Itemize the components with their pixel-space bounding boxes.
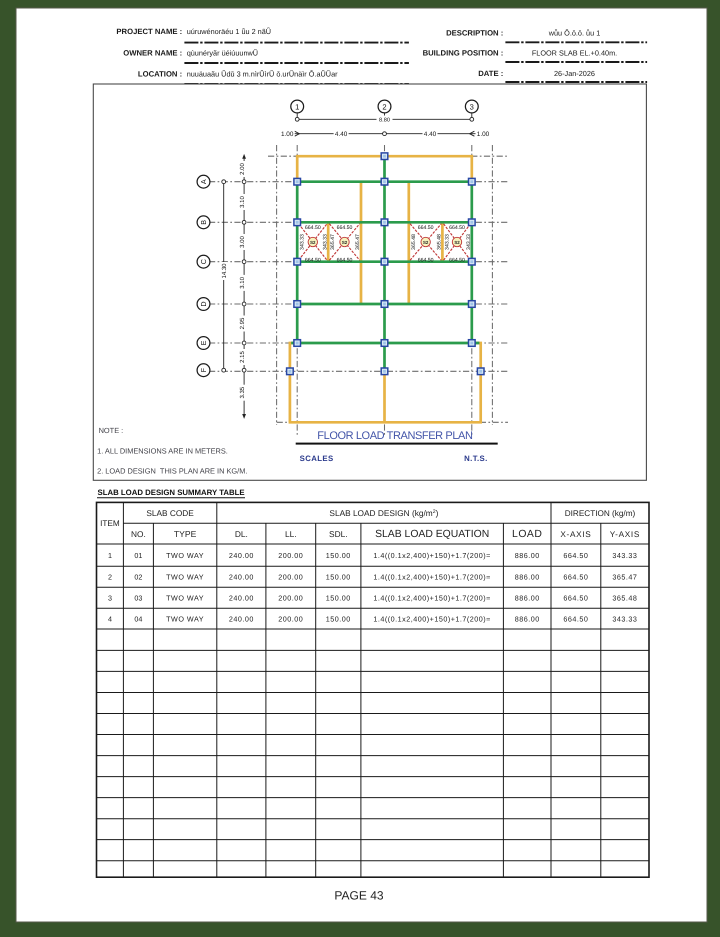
svg-text:qùunéryãr üéiúuunwǕ: qùunéryãr üéiúuunwǕ bbox=[187, 49, 258, 58]
svg-text:TWO WAY: TWO WAY bbox=[166, 593, 204, 602]
svg-text:PROJECT NAME :: PROJECT NAME : bbox=[116, 27, 182, 36]
svg-text:1.00: 1.00 bbox=[281, 131, 294, 138]
svg-text:DESCRIPTION :: DESCRIPTION : bbox=[446, 28, 503, 37]
svg-text:240.00: 240.00 bbox=[229, 614, 254, 623]
svg-text:SLAB LOAD DESIGN (kg/m2): SLAB LOAD DESIGN (kg/m2) bbox=[329, 508, 438, 518]
svg-text:343.33: 343.33 bbox=[299, 234, 305, 250]
svg-text:1: 1 bbox=[108, 551, 112, 560]
svg-text:TYPE: TYPE bbox=[174, 529, 197, 539]
svg-text:664.50: 664.50 bbox=[563, 551, 588, 560]
svg-text:FLOOR LOAD TRANSFER PLAN: FLOOR LOAD TRANSFER PLAN bbox=[317, 430, 473, 442]
svg-text:664.50: 664.50 bbox=[418, 225, 434, 231]
svg-text:664.50: 664.50 bbox=[418, 257, 434, 263]
svg-text:ITEM: ITEM bbox=[100, 519, 120, 528]
svg-text:03: 03 bbox=[134, 593, 142, 602]
svg-text:365.48: 365.48 bbox=[612, 593, 637, 602]
svg-text:365.47: 365.47 bbox=[330, 234, 336, 250]
svg-text:1: 1 bbox=[295, 102, 299, 111]
svg-text:1.4((0.1x2,400)+150)+1.7(200)=: 1.4((0.1x2,400)+150)+1.7(200)= bbox=[373, 551, 491, 560]
svg-text:664.50: 664.50 bbox=[563, 614, 588, 623]
svg-text:S2: S2 bbox=[342, 240, 348, 245]
svg-text:BUILDING POSITION :: BUILDING POSITION : bbox=[423, 48, 504, 57]
svg-text:SCALES: SCALES bbox=[300, 454, 334, 463]
svg-text:C: C bbox=[199, 259, 208, 264]
svg-text:LOCATION :: LOCATION : bbox=[138, 70, 182, 79]
svg-text:B: B bbox=[199, 220, 208, 225]
svg-text:2.95: 2.95 bbox=[239, 317, 246, 329]
svg-text:NOTE :: NOTE : bbox=[99, 426, 124, 435]
svg-text:664.50: 664.50 bbox=[337, 225, 353, 231]
svg-text:04: 04 bbox=[134, 614, 142, 623]
svg-text:664.50: 664.50 bbox=[563, 593, 588, 602]
svg-text:N.T.S.: N.T.S. bbox=[464, 454, 488, 463]
svg-text:343.33: 343.33 bbox=[444, 234, 450, 250]
svg-text:PAGE 43: PAGE 43 bbox=[334, 889, 383, 903]
svg-text:365.47: 365.47 bbox=[612, 572, 637, 581]
svg-text:1. ALL DIMENSIONS ARE IN METER: 1. ALL DIMENSIONS ARE IN METERS. bbox=[97, 446, 228, 455]
svg-text:2. LOAD DESIGN THIS PLAN ARE: 2. LOAD DESIGN THIS PLAN ARE IN KG/M. bbox=[97, 467, 247, 476]
svg-text:D: D bbox=[199, 301, 208, 306]
svg-text:E: E bbox=[199, 340, 208, 345]
svg-text:01: 01 bbox=[134, 551, 142, 560]
svg-text:S2: S2 bbox=[454, 240, 460, 245]
svg-text:150.00: 150.00 bbox=[326, 551, 351, 560]
svg-text:343.33: 343.33 bbox=[466, 234, 472, 250]
svg-text:DL.: DL. bbox=[235, 529, 248, 539]
svg-text:664.50: 664.50 bbox=[449, 225, 465, 231]
svg-text:3.00: 3.00 bbox=[239, 236, 246, 248]
svg-text:1.4((0.1x2,400)+150)+1.7(200)=: 1.4((0.1x2,400)+150)+1.7(200)= bbox=[373, 593, 491, 602]
svg-text:wǚu Ǒ.ǒ.ǒ. ǖu 1: wǚu Ǒ.ǒ.ǒ. ǖu 1 bbox=[548, 28, 601, 37]
svg-text:664.50: 664.50 bbox=[337, 257, 353, 263]
svg-text:343.33: 343.33 bbox=[612, 551, 637, 560]
svg-text:200.00: 200.00 bbox=[278, 551, 303, 560]
svg-text:OWNER NAME :: OWNER NAME : bbox=[123, 49, 182, 58]
svg-text:SDL.: SDL. bbox=[329, 529, 348, 539]
svg-text:4: 4 bbox=[108, 614, 112, 623]
svg-text:SLAB LOAD DESIGN SUMMARY TABLE: SLAB LOAD DESIGN SUMMARY TABLE bbox=[98, 488, 245, 497]
svg-text:2.00: 2.00 bbox=[239, 163, 246, 175]
svg-text:240.00: 240.00 bbox=[229, 593, 254, 602]
svg-text:343.33: 343.33 bbox=[612, 614, 637, 623]
svg-text:886.00: 886.00 bbox=[515, 593, 540, 602]
svg-text:SLAB CODE: SLAB CODE bbox=[146, 508, 194, 518]
svg-text:365.48: 365.48 bbox=[437, 234, 443, 250]
svg-text:3: 3 bbox=[470, 102, 474, 111]
svg-text:150.00: 150.00 bbox=[326, 614, 351, 623]
svg-text:2.15: 2.15 bbox=[239, 351, 246, 363]
svg-text:4.40: 4.40 bbox=[424, 131, 437, 138]
svg-text:1.4((0.1x2,400)+150)+1.7(200)=: 1.4((0.1x2,400)+150)+1.7(200)= bbox=[373, 572, 491, 581]
svg-text:2: 2 bbox=[382, 102, 386, 111]
svg-text:A: A bbox=[199, 179, 208, 184]
svg-text:200.00: 200.00 bbox=[278, 593, 303, 602]
svg-text:343.33: 343.33 bbox=[322, 234, 328, 250]
svg-text:1.00: 1.00 bbox=[477, 131, 490, 138]
svg-text:FLOOR SLAB EL.+0.40m.: FLOOR SLAB EL.+0.40m. bbox=[532, 48, 617, 57]
svg-text:SLAB LOAD EQUATION: SLAB LOAD EQUATION bbox=[375, 529, 489, 540]
svg-text:S2: S2 bbox=[310, 240, 316, 245]
svg-text:02: 02 bbox=[134, 572, 142, 581]
svg-text:664.50: 664.50 bbox=[305, 225, 321, 231]
svg-text:200.00: 200.00 bbox=[278, 614, 303, 623]
svg-text:nuuäuaãu Ǖdǔ 3 m.nìrǕìrǕ ǒ.urǕ: nuuäuaãu Ǖdǔ 3 m.nìrǕìrǕ ǒ.urǕnäìr Ǒ.aǕǕ… bbox=[187, 70, 338, 79]
svg-text:150.00: 150.00 bbox=[326, 593, 351, 602]
svg-text:664.50: 664.50 bbox=[563, 572, 588, 581]
svg-text:240.00: 240.00 bbox=[229, 572, 254, 581]
svg-text:886.00: 886.00 bbox=[515, 614, 540, 623]
svg-text:LL.: LL. bbox=[285, 529, 297, 539]
svg-text:365.48: 365.48 bbox=[411, 234, 417, 250]
svg-text:uúruwénoräéu 1 ǖu 2 nãǕ: uúruwénoräéu 1 ǖu 2 nãǕ bbox=[187, 27, 271, 36]
svg-text:1.4((0.1x2,400)+150)+1.7(200)=: 1.4((0.1x2,400)+150)+1.7(200)= bbox=[373, 614, 491, 623]
svg-text:Y-AXIS: Y-AXIS bbox=[610, 530, 640, 539]
svg-text:8.80: 8.80 bbox=[379, 117, 390, 123]
svg-text:240.00: 240.00 bbox=[229, 551, 254, 560]
svg-text:664.50: 664.50 bbox=[305, 257, 321, 263]
svg-text:X-AXIS: X-AXIS bbox=[560, 530, 591, 539]
svg-text:DIRECTION (kg/m): DIRECTION (kg/m) bbox=[565, 509, 636, 518]
svg-text:886.00: 886.00 bbox=[515, 551, 540, 560]
svg-text:TWO WAY: TWO WAY bbox=[166, 614, 204, 623]
svg-text:14.30: 14.30 bbox=[221, 263, 228, 279]
svg-text:TWO WAY: TWO WAY bbox=[166, 551, 204, 560]
svg-text:LOAD: LOAD bbox=[512, 529, 542, 540]
svg-text:664.50: 664.50 bbox=[449, 257, 465, 263]
svg-text:TWO WAY: TWO WAY bbox=[166, 572, 204, 581]
svg-text:NO.: NO. bbox=[131, 529, 146, 539]
svg-text:886.00: 886.00 bbox=[515, 572, 540, 581]
svg-text:365.47: 365.47 bbox=[355, 234, 361, 250]
svg-text:4.40: 4.40 bbox=[335, 131, 348, 138]
svg-text:F: F bbox=[199, 367, 208, 372]
svg-text:S2: S2 bbox=[423, 240, 429, 245]
svg-text:3.10: 3.10 bbox=[239, 276, 246, 288]
svg-text:200.00: 200.00 bbox=[278, 572, 303, 581]
svg-text:DATE :: DATE : bbox=[478, 69, 503, 78]
svg-text:3.10: 3.10 bbox=[239, 196, 246, 208]
svg-text:3: 3 bbox=[108, 593, 112, 602]
svg-text:3.35: 3.35 bbox=[239, 386, 246, 398]
svg-text:150.00: 150.00 bbox=[326, 572, 351, 581]
svg-text:2: 2 bbox=[108, 572, 112, 581]
svg-text:26-Jan-2026: 26-Jan-2026 bbox=[554, 69, 595, 78]
